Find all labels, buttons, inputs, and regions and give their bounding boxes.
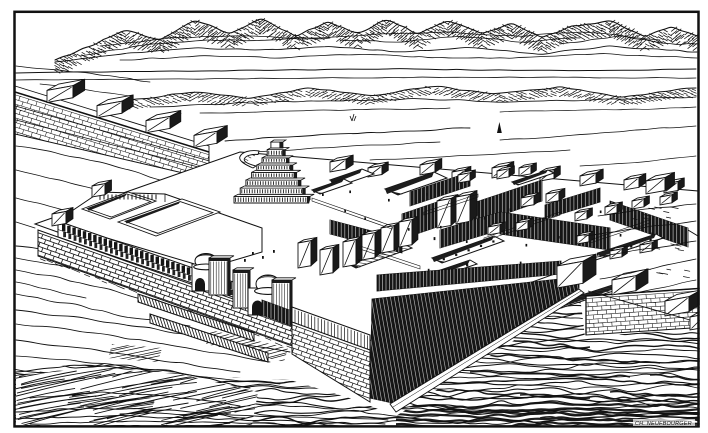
svg-text:CH. NEUFBOURGER: CH. NEUFBOURGER xyxy=(635,421,692,427)
